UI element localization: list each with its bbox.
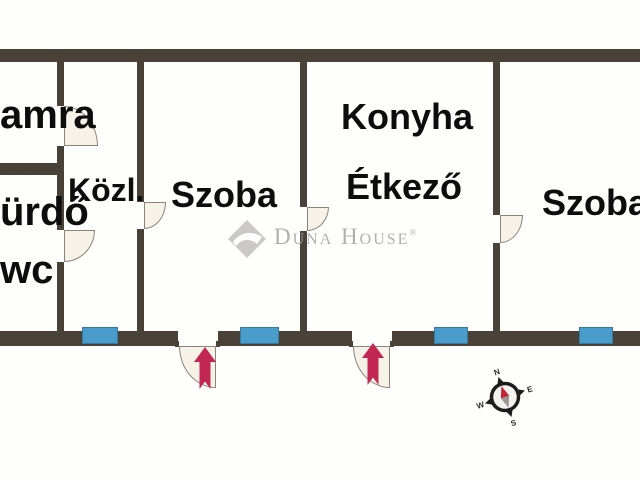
window-konyha [434, 327, 468, 344]
floor-plan: amra ürdő wc Közl. Szoba Konyha Étkező S… [0, 0, 640, 480]
compass-w-label: W [475, 400, 485, 411]
wall-d-upper [493, 62, 500, 215]
compass-rose-icon: N E S W [473, 365, 537, 429]
hinge-icon [390, 341, 394, 347]
room-label-kamra: amra [0, 95, 96, 135]
wall-top [0, 49, 640, 62]
watermark-brand: Duna House® [274, 224, 416, 250]
room-label-konyha: Konyha [341, 99, 473, 135]
hinge-icon [216, 341, 220, 347]
watermark: Duna House® [226, 218, 416, 260]
room-label-wc: wc [0, 250, 53, 290]
compass-n-label: N [493, 367, 501, 377]
dunahouse-logo-icon [226, 218, 268, 260]
door-furdo [64, 230, 95, 262]
wall-d-lower [493, 243, 500, 331]
wall-c-upper [300, 62, 307, 207]
wall-a-lower [57, 262, 64, 331]
wall-b-lower [137, 229, 144, 331]
room-label-szoba-right: Szoba [542, 185, 640, 221]
compass-e-label: E [526, 384, 534, 394]
room-label-kozlekedo: Közl. [68, 174, 144, 206]
door-szoba-left [144, 202, 166, 229]
entrance-arrow-icon [362, 343, 384, 385]
window-kozlekedo [82, 327, 118, 344]
entrance-arrow-icon [194, 347, 216, 389]
room-label-etkezo: Étkező [346, 169, 462, 205]
compass-s-label: S [510, 418, 518, 428]
wall-kamra-furdo [0, 163, 57, 175]
window-szoba-right [579, 327, 613, 344]
door-szoba-right [500, 215, 523, 243]
room-label-szoba-left: Szoba [171, 177, 277, 213]
entrance-opening-1 [178, 331, 218, 346]
registered-mark: ® [409, 227, 416, 237]
window-szoba-left [240, 327, 279, 344]
